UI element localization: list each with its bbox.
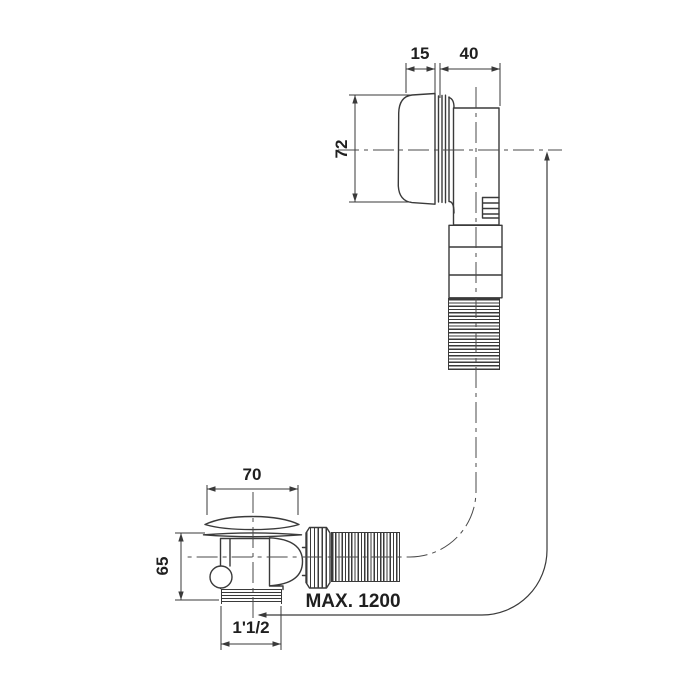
dim-label-70: 70 bbox=[237, 465, 267, 485]
dim-label-72: 72 bbox=[332, 134, 352, 164]
drain-ball-detail bbox=[210, 566, 232, 588]
overflow-assembly-outline bbox=[398, 94, 502, 298]
dim-label-thread-size: 1'1/2 bbox=[221, 618, 281, 638]
dim-label-15: 15 bbox=[405, 44, 435, 64]
dim-label-65: 65 bbox=[153, 551, 173, 581]
dim-label-max-length: MAX. 1200 bbox=[293, 592, 413, 612]
technical-drawing-canvas: 15 40 72 70 65 1'1/2 MAX. 1200 bbox=[0, 0, 700, 700]
hose-length-dimension bbox=[258, 152, 550, 618]
dim-label-40: 40 bbox=[454, 44, 484, 64]
centerlines bbox=[184, 87, 562, 621]
